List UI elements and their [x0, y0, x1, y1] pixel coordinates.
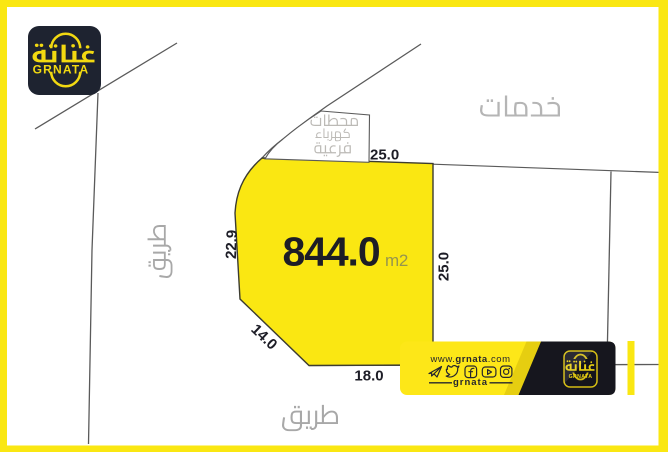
svg-text:22.9: 22.9 [223, 230, 241, 260]
svg-text:25.0: 25.0 [435, 252, 452, 281]
svg-text:m2: m2 [385, 251, 408, 270]
svg-text:www.grnata.com: www.grnata.com [430, 354, 511, 365]
svg-text:GRNATA: GRNATA [33, 63, 90, 77]
svg-text:grnata: grnata [453, 377, 488, 388]
svg-text:25.0: 25.0 [370, 147, 399, 164]
svg-text:18.0: 18.0 [354, 368, 383, 385]
svg-text:844.0: 844.0 [282, 229, 379, 275]
